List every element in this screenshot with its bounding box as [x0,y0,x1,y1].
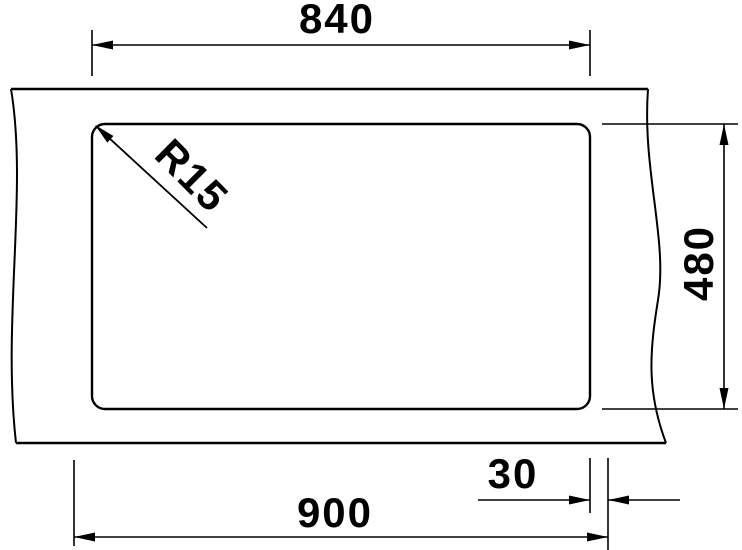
corner-radius-label: R15 [146,130,238,222]
dim-cutout-width: 840 [92,0,590,76]
arrow-down-icon [720,388,729,409]
dim-cutout-width-label: 840 [299,0,375,42]
drawing-canvas: 840 480 900 30 [0,0,742,550]
sink-cutout-dimension-drawing: 840 480 900 30 [0,0,742,550]
dim-edge-offset: 30 [478,450,680,550]
callout-corner-radius: R15 [92,122,238,228]
arrow-left-icon [92,41,113,50]
arrow-right-icon [587,533,608,542]
arrow-right-icon [569,496,590,505]
arrow-up-icon [720,124,729,145]
countertop-right-break-line [647,89,666,443]
arrow-left-icon [74,533,95,542]
countertop-outline [11,89,666,443]
dim-cutout-depth: 480 [602,124,738,409]
arrow-left-icon [608,496,629,505]
dim-cabinet-width-label: 900 [297,489,373,536]
countertop-left-break-line [11,89,17,443]
dim-cutout-depth-label: 480 [675,225,722,301]
arrow-right-icon [569,41,590,50]
dim-edge-offset-label: 30 [488,450,539,497]
